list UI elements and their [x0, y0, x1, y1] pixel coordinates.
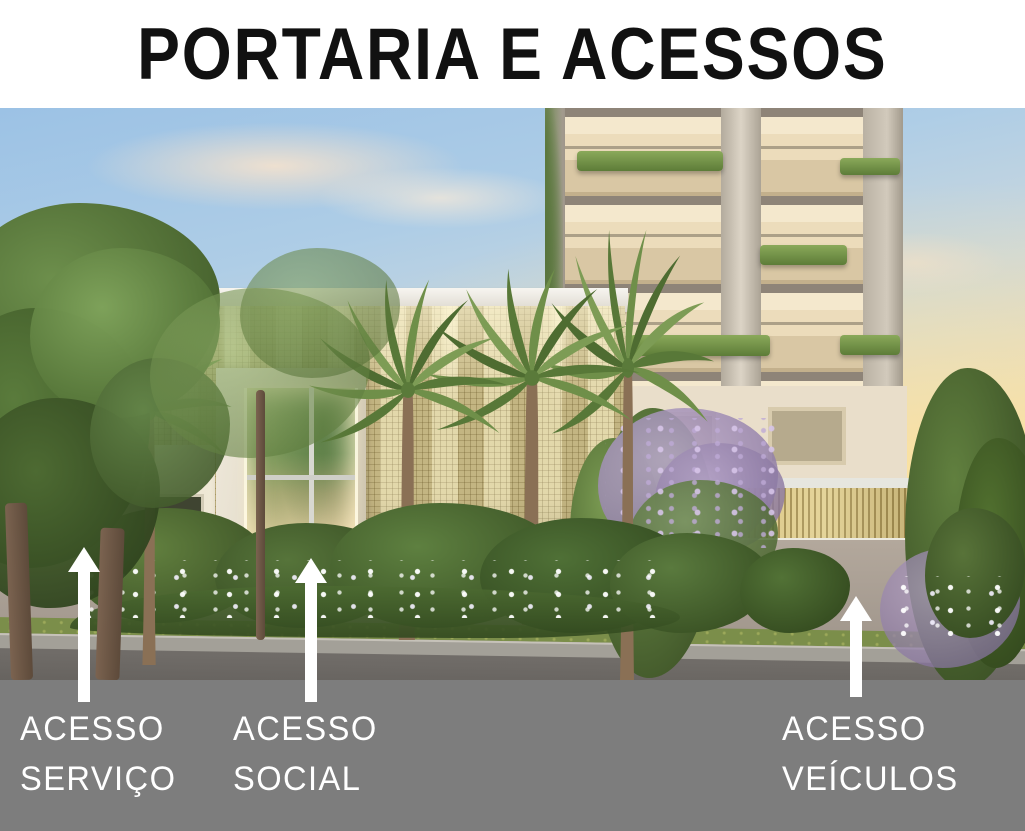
label-line: ACESSO	[20, 704, 176, 754]
label-line: ACESSO	[233, 704, 378, 754]
flower-cluster	[880, 576, 1020, 636]
up-arrow-icon	[840, 596, 872, 621]
rendering	[0, 108, 1025, 680]
header: PORTARIA E ACESSOS	[0, 0, 1025, 108]
label-line: SOCIAL	[233, 754, 378, 804]
label-line: SERVIÇO	[20, 754, 176, 804]
page: PORTARIA E ACESSOS	[0, 0, 1025, 831]
label-line: ACESSO	[782, 704, 959, 754]
label-acesso-veiculos: ACESSO VEÍCULOS	[782, 704, 959, 804]
window	[772, 411, 842, 461]
cloud	[300, 163, 580, 233]
label-acesso-servico: ACESSO SERVIÇO	[20, 704, 176, 804]
balcony-planter	[840, 335, 900, 355]
up-arrow-icon	[68, 547, 100, 572]
up-arrow-icon	[295, 558, 327, 583]
tree-trunk	[256, 390, 265, 640]
arrow-shaft	[78, 570, 90, 702]
label-line: VEÍCULOS	[782, 754, 959, 804]
page-title: PORTARIA E ACESSOS	[137, 13, 887, 96]
balcony-planter	[840, 158, 900, 175]
arrow-shaft	[850, 619, 862, 697]
label-acesso-social: ACESSO SOCIAL	[233, 704, 378, 804]
caption-bar: ACESSO SERVIÇO ACESSO SOCIAL ACESSO VEÍC…	[0, 680, 1025, 831]
arrow-shaft	[305, 581, 317, 702]
balcony-planter	[760, 245, 847, 265]
balcony-planter	[577, 151, 723, 171]
